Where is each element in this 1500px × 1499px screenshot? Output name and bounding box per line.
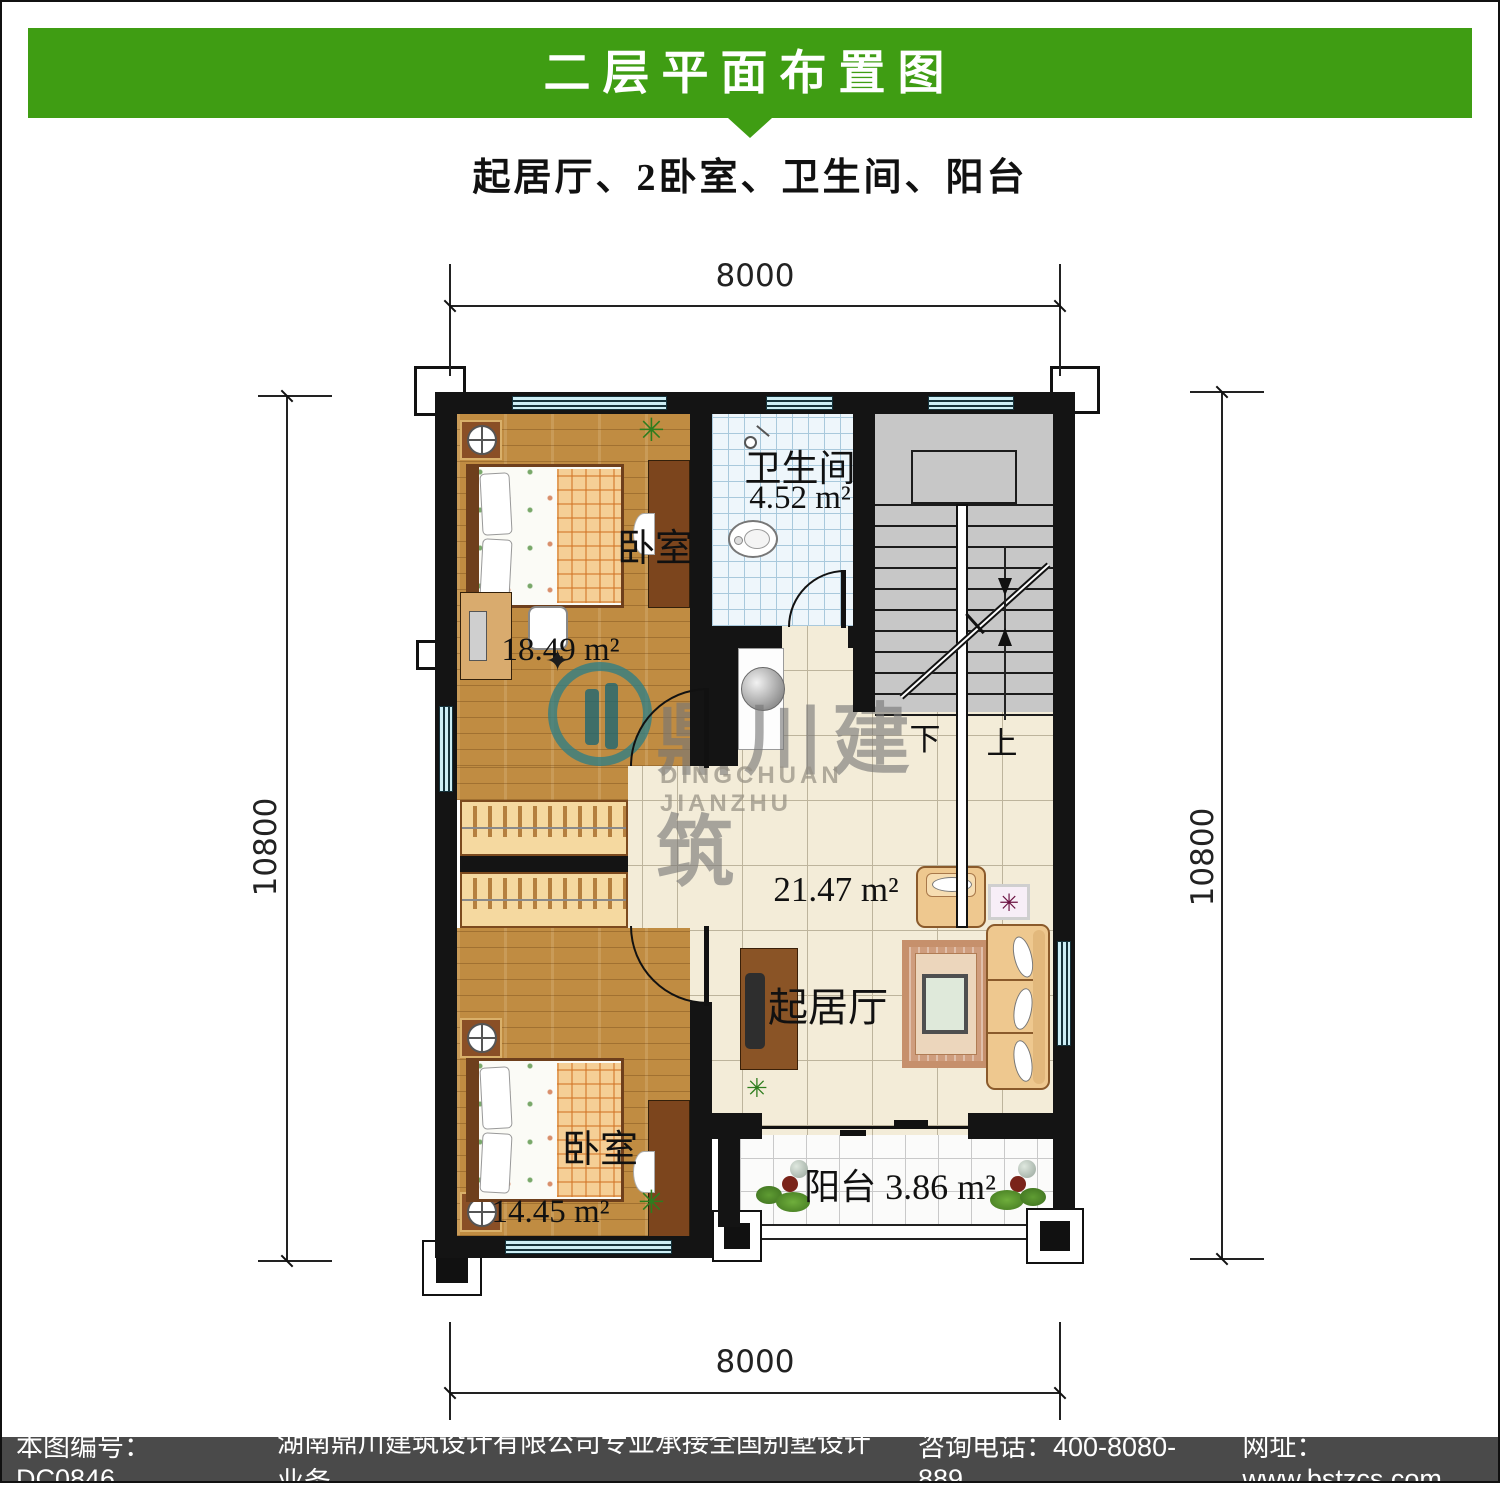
flower-icon: ✳ bbox=[999, 890, 1019, 917]
post-core bbox=[1040, 1221, 1070, 1250]
dim-left-ext-bottom bbox=[258, 1260, 332, 1262]
wall-bathroom-south-west bbox=[712, 626, 782, 648]
wardrobe-top bbox=[460, 800, 628, 856]
dim-right-line bbox=[1221, 392, 1223, 1260]
dim-left-ext-top bbox=[258, 395, 332, 397]
footer-website: 网址：www.bstzcs.com bbox=[1242, 1425, 1500, 1495]
toilet-button bbox=[734, 536, 743, 545]
living-room-label: 起居厅 bbox=[744, 975, 912, 1033]
logo-bar bbox=[585, 689, 599, 745]
logo-bar bbox=[605, 683, 618, 749]
bedroom-top-floor-strip bbox=[457, 766, 628, 800]
wall-left bbox=[435, 392, 457, 1258]
nightstand bbox=[460, 1018, 502, 1058]
window-top-bedroom bbox=[512, 396, 667, 410]
sofa-backrest bbox=[1033, 930, 1045, 1084]
lamp-icon bbox=[467, 1023, 497, 1053]
dim-right-ext-top bbox=[1190, 391, 1264, 393]
dim-left-value: 10800 bbox=[248, 787, 284, 907]
wall-right bbox=[1053, 392, 1075, 1210]
stair-arrow-down-icon bbox=[998, 578, 1012, 596]
page-subtitle: 起居厅、2卧室、卫生间、阳台 bbox=[0, 146, 1500, 201]
bedroom-top-door-leaf bbox=[704, 688, 709, 768]
bed-pillow bbox=[479, 1132, 512, 1193]
stair-up-label: 上 bbox=[980, 718, 1024, 763]
window-left-wall bbox=[439, 706, 453, 792]
page-title: 二层平面布置图 bbox=[28, 28, 1472, 118]
bed-pillow bbox=[479, 472, 512, 535]
bedroom-bottom-label: 卧室 bbox=[540, 1118, 660, 1173]
dim-bottom-ext-right bbox=[1059, 1322, 1061, 1420]
footer-phone: 咨询电话：400-8080-889 bbox=[918, 1425, 1196, 1495]
bed-pillow bbox=[479, 538, 512, 599]
wall-bedroom-living bbox=[690, 1002, 712, 1236]
sofa bbox=[986, 924, 1050, 1090]
dim-bottom-line bbox=[450, 1392, 1060, 1394]
threshold-tab bbox=[894, 1120, 928, 1126]
bathroom-door-leaf bbox=[841, 570, 846, 628]
toilet-bowl bbox=[744, 529, 770, 549]
plant-icon: ✳ bbox=[746, 1072, 768, 1104]
balcony-label: 阳台 bbox=[804, 1167, 876, 1207]
balcony-label-row: 阳台 3.86 m² bbox=[770, 1158, 1030, 1210]
sparkle-icon: ✦ bbox=[545, 644, 570, 679]
dim-top-line bbox=[450, 305, 1060, 307]
threshold-tab bbox=[840, 1130, 866, 1136]
window-top-stairs bbox=[928, 396, 1014, 410]
coffee-table bbox=[922, 974, 968, 1034]
wardrobe-divider-wall bbox=[460, 856, 628, 872]
wall-bedroom-bathroom bbox=[690, 414, 712, 626]
plant-icon: ✳ bbox=[638, 1186, 665, 1218]
bedroom-bottom-area: 14.45 m² bbox=[468, 1194, 633, 1231]
stair-landing-outline bbox=[911, 450, 1017, 504]
balcony-railing-line bbox=[740, 1224, 1053, 1226]
bed-headboard bbox=[469, 467, 479, 605]
footer-company: 湖南鼎川建筑设计有限公司专业承接全国别墅设计业务 bbox=[277, 1421, 872, 1499]
sofa-pillow bbox=[1010, 987, 1035, 1031]
toilet-icon bbox=[728, 520, 778, 558]
dim-left-line bbox=[286, 396, 288, 1262]
bedroom-bottom-door-leaf bbox=[704, 926, 709, 1006]
stair-arrow-up-icon bbox=[998, 628, 1012, 646]
wardrobe-bottom bbox=[460, 872, 628, 928]
balcony-railing-line bbox=[740, 1238, 1053, 1240]
banner-pointer-triangle bbox=[728, 118, 772, 138]
window-top-bathroom bbox=[766, 396, 833, 410]
footer-bar: 本图编号：DC0846 湖南鼎川建筑设计有限公司专业承接全国别墅设计业务 咨询电… bbox=[0, 1437, 1500, 1483]
lamp-icon bbox=[467, 425, 497, 455]
dim-top-ext-left bbox=[449, 264, 451, 376]
dim-top-value: 8000 bbox=[600, 258, 910, 294]
dim-bottom-value: 8000 bbox=[600, 1344, 910, 1380]
dim-bottom-ext-left bbox=[449, 1322, 451, 1420]
dim-right-ext-bottom bbox=[1190, 1258, 1264, 1260]
window-right-wall bbox=[1057, 941, 1071, 1046]
bed-pillow bbox=[479, 1066, 512, 1129]
wall-stair-west bbox=[853, 414, 875, 712]
dim-top-ext-right bbox=[1059, 264, 1061, 376]
watermark-en: DINGCHUAN JIANZHU bbox=[660, 762, 980, 818]
flower-picture: ✳ bbox=[988, 884, 1030, 920]
dim-right-value: 10800 bbox=[1185, 797, 1221, 917]
wall-balcony-stub-right bbox=[968, 1113, 1053, 1139]
balcony-area: 3.86 m² bbox=[885, 1167, 996, 1207]
nightstand bbox=[460, 420, 502, 460]
plant-icon: ✳ bbox=[638, 414, 665, 446]
sofa-pillow bbox=[1010, 1039, 1035, 1083]
wall-balcony-left bbox=[718, 1135, 740, 1227]
bed-headboard bbox=[469, 1061, 479, 1199]
window-bottom-bedroom bbox=[505, 1240, 672, 1254]
title-banner: 二层平面布置图 bbox=[28, 28, 1472, 118]
footer-plan-number: 本图编号：DC0846 bbox=[16, 1425, 231, 1495]
balcony-door-threshold bbox=[762, 1126, 968, 1129]
